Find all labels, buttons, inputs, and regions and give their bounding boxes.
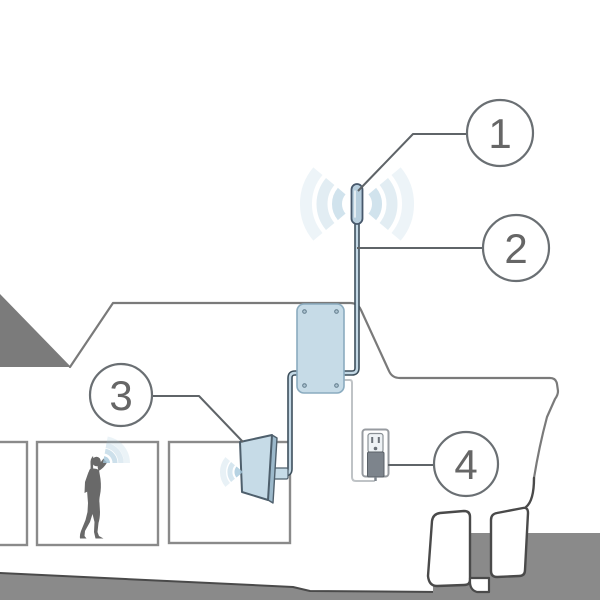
transom-bracket-tab [470,578,489,592]
wave-arc [372,191,377,217]
transom-bracket-left-lobe [428,511,470,586]
callout-number-3: 3 [109,372,132,419]
callout-number-1: 1 [488,110,511,157]
booster-screw [303,384,307,388]
outside-antenna-body [352,184,363,224]
signal-booster [297,304,344,393]
booster-body [297,304,344,393]
booster-screw [303,310,307,314]
outlet-slot [371,437,373,443]
outlet-ground-hole [374,447,378,451]
outlet-slot [378,437,380,443]
power-outlet [363,430,389,482]
callout-number-4: 4 [454,441,477,488]
transom-bracket-right-lobe [491,508,528,577]
booster-screw [335,310,339,314]
outside-antenna [352,184,363,224]
window-1 [0,442,27,545]
power-supply-plug [368,452,385,477]
wave-arc [337,191,342,217]
booster-screw [335,384,339,388]
inside-antenna-panel [240,435,272,500]
callout-number-2: 2 [504,225,527,272]
person-torso [87,468,101,503]
diagram-canvas: 1 2 3 4 [0,0,600,600]
